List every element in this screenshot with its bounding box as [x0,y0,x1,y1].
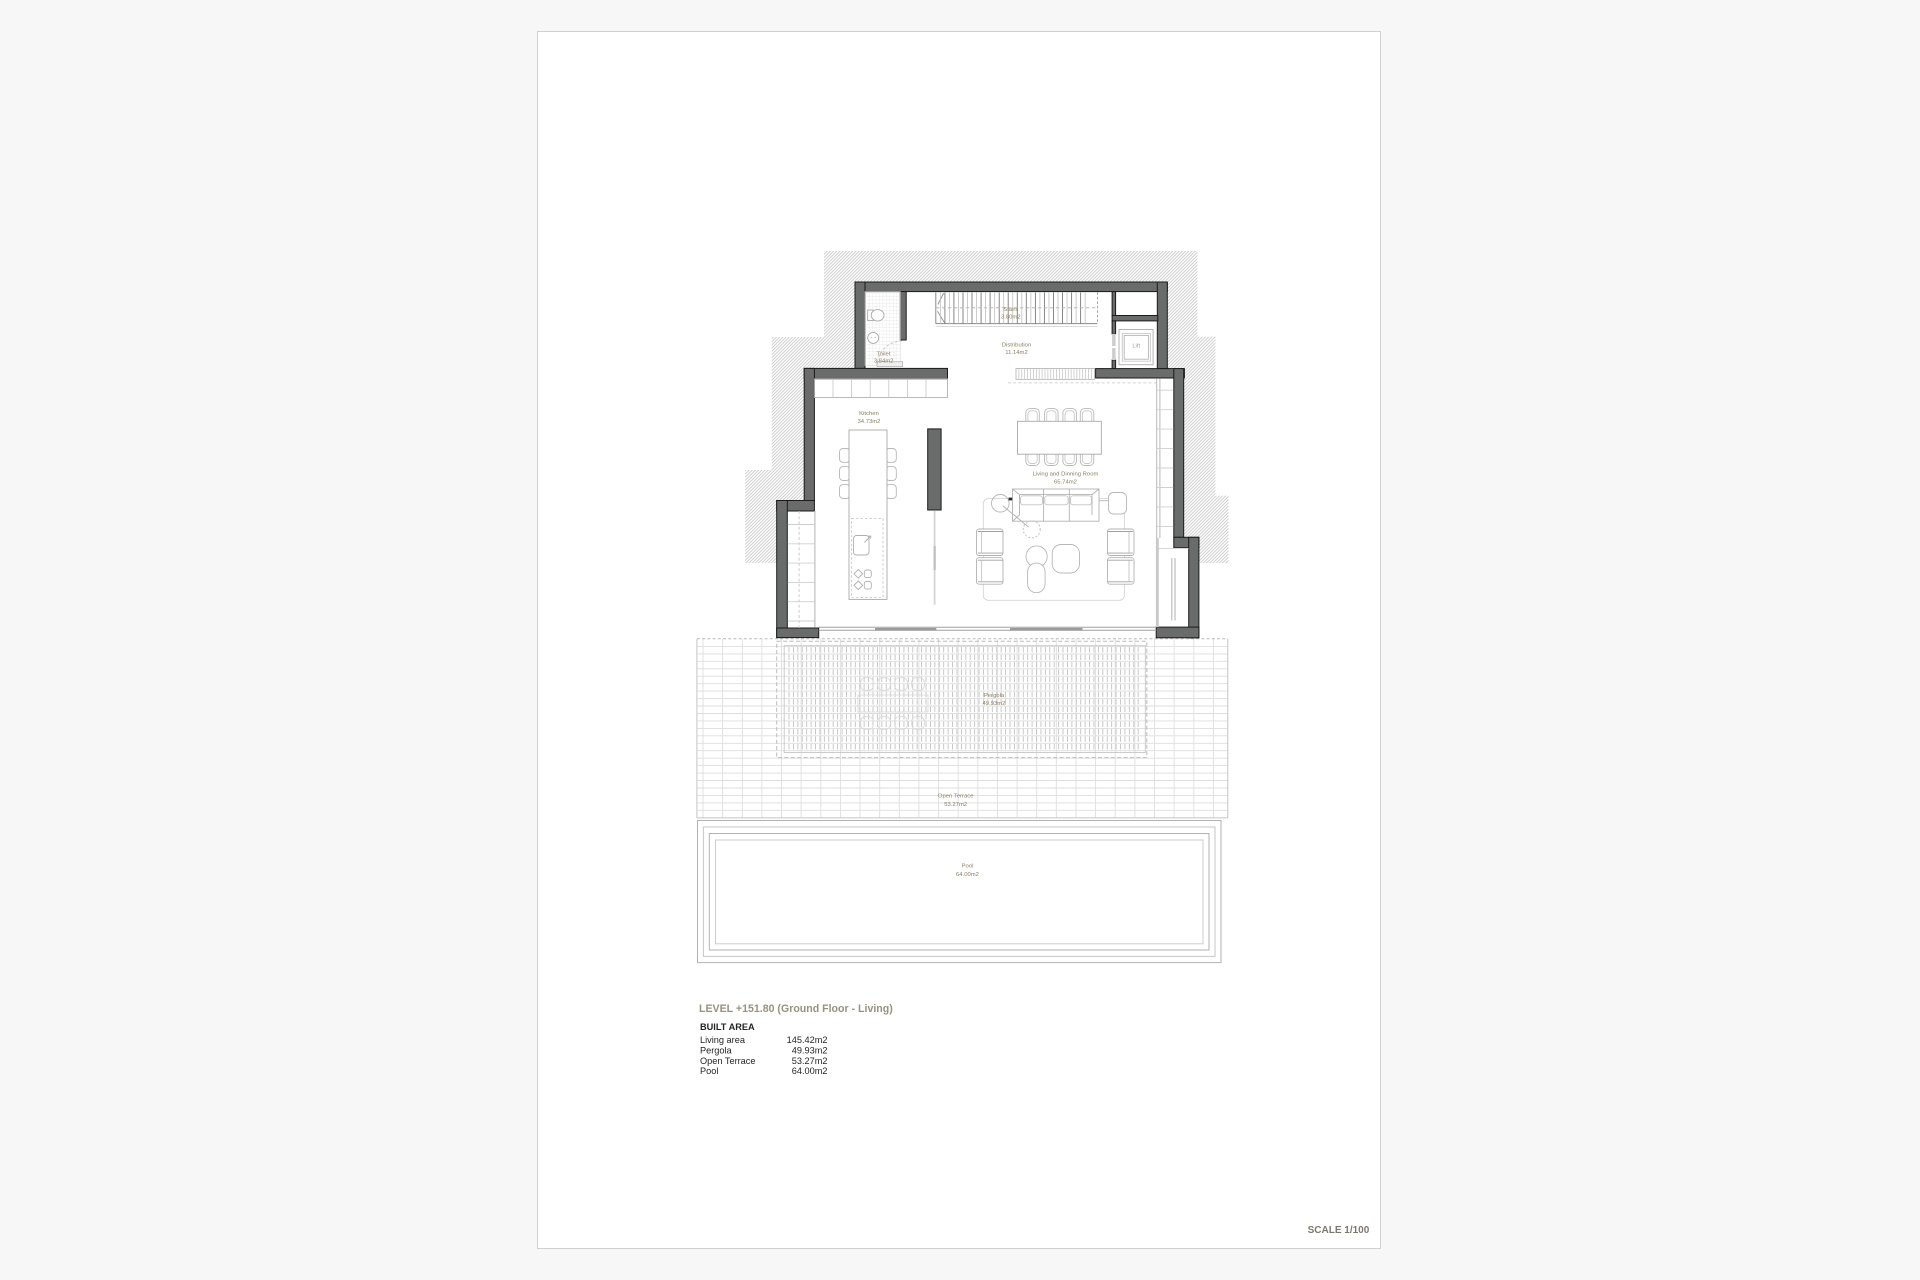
svg-text:Living area: Living area [700,1035,746,1045]
svg-text:145.42m2: 145.42m2 [787,1035,828,1045]
svg-text:Living and Dinning Room: Living and Dinning Room [1033,472,1099,478]
svg-text:Toilet: Toilet [877,351,891,357]
svg-text:65.74m2: 65.74m2 [1054,479,1077,485]
svg-text:BUILT AREA: BUILT AREA [700,1022,755,1032]
svg-text:Pergola: Pergola [984,693,1005,699]
svg-text:64.00m2: 64.00m2 [792,1066,828,1076]
svg-text:53.27m2: 53.27m2 [944,802,967,808]
svg-text:49.93m2: 49.93m2 [983,701,1006,707]
svg-text:Kitchen: Kitchen [859,411,879,417]
svg-text:Pergola: Pergola [700,1046,733,1056]
svg-text:Distribution: Distribution [1002,342,1031,348]
svg-text:Pool: Pool [962,863,974,869]
svg-text:49.93m2: 49.93m2 [792,1046,828,1056]
svg-text:SCALE 1/100: SCALE 1/100 [1308,1225,1370,1236]
svg-text:3,84m2: 3,84m2 [874,359,894,365]
svg-text:Pool: Pool [700,1066,718,1076]
svg-text:Stairs: Stairs [1003,307,1018,313]
svg-text:LEVEL +151.80 (Ground Floor -: LEVEL +151.80 (Ground Floor - Living) [699,1003,893,1015]
svg-text:3.80m2: 3.80m2 [1001,315,1021,321]
svg-text:53.27m2: 53.27m2 [792,1056,828,1066]
svg-text:11.14m2: 11.14m2 [1005,350,1028,356]
svg-text:Open Terrace: Open Terrace [938,794,974,800]
svg-text:Open Terrace: Open Terrace [700,1056,756,1066]
svg-text:34.73m2: 34.73m2 [858,419,881,425]
svg-text:Lift: Lift [1132,344,1140,350]
svg-text:64.00m2: 64.00m2 [956,872,979,878]
